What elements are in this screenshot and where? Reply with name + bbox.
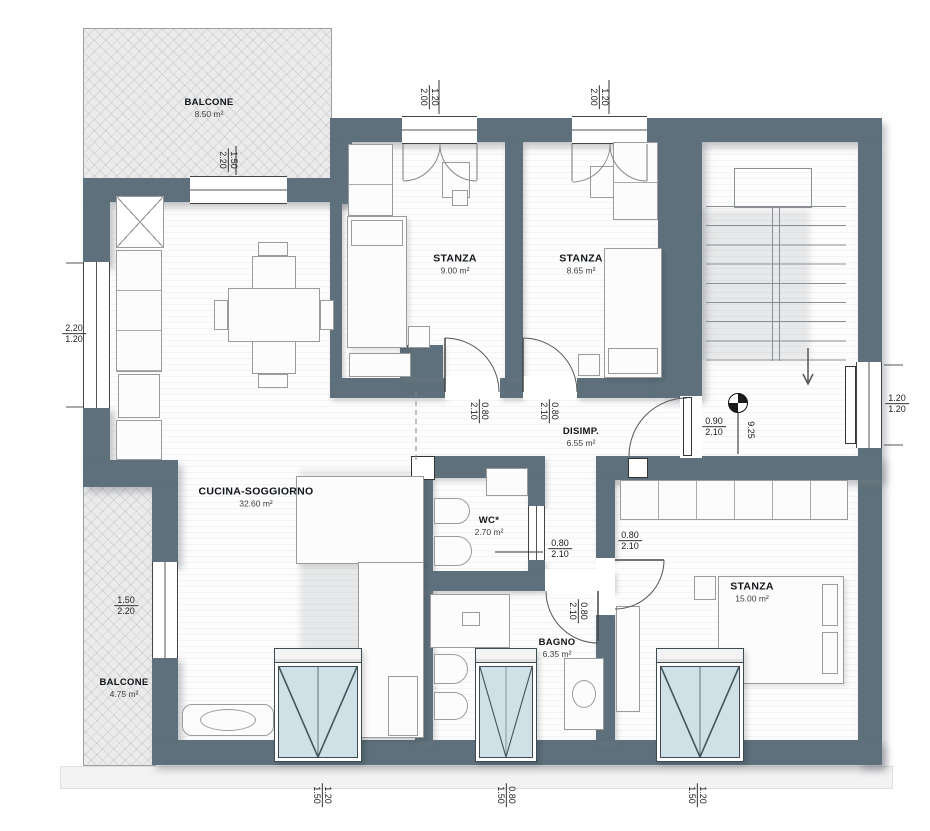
corner-post bbox=[628, 458, 648, 478]
nightstand bbox=[408, 326, 430, 348]
dimension-door-wc: 0.80 2.10 bbox=[548, 538, 572, 560]
dim-width: 1.20 bbox=[885, 393, 909, 404]
dimension-door-stanza2: 0.80 2.10 bbox=[538, 399, 560, 423]
wall-wc-right-upper bbox=[528, 478, 545, 506]
wall-wc-bagno-divider bbox=[415, 571, 545, 591]
dim-width: 0.90 bbox=[702, 416, 726, 427]
pillow bbox=[822, 584, 838, 626]
dim-height: 2.10 bbox=[702, 428, 726, 438]
chair bbox=[258, 374, 288, 388]
dimension-top-window-1: 1.20 2.00 bbox=[418, 85, 440, 109]
room-name: DISIMP. bbox=[563, 426, 599, 437]
dim-width: 1.20 bbox=[599, 85, 610, 109]
room-area: 8.65 m² bbox=[559, 266, 603, 276]
dim-height: 2.10 bbox=[548, 550, 572, 560]
glass-panel bbox=[479, 666, 533, 758]
dim-height: 1.20 bbox=[885, 405, 909, 415]
nightstand bbox=[578, 354, 600, 376]
sofa-chaise bbox=[296, 476, 424, 564]
wc-sink bbox=[486, 468, 528, 496]
dim-width: 1.20 bbox=[429, 85, 440, 109]
wall-left-upper bbox=[83, 202, 110, 264]
room-label-wc: WC* 2.70 m² bbox=[475, 515, 504, 537]
door-opening-stanza2 bbox=[523, 376, 577, 400]
wall-panel bbox=[616, 606, 640, 712]
pillow bbox=[822, 632, 838, 674]
wc-sliding-door bbox=[528, 506, 545, 560]
dim-width: 0.80 bbox=[618, 530, 642, 541]
nightstand bbox=[694, 576, 716, 600]
room-name: CUCINA-SOGGIORNO bbox=[198, 486, 313, 498]
ground-band bbox=[60, 766, 893, 789]
stair-landing-outline bbox=[734, 168, 812, 208]
vanity-basin bbox=[572, 680, 596, 708]
dim-height: 1.50 bbox=[311, 783, 321, 807]
door-opening-bagno bbox=[545, 569, 598, 593]
dimension-left-balcony-door: 1.50 2.20 bbox=[114, 595, 138, 617]
room-area: 6.35 m² bbox=[539, 649, 576, 659]
dim-width: 1.20 bbox=[697, 783, 708, 807]
room-name: STANZA bbox=[433, 253, 477, 265]
dim-height: 1.20 bbox=[62, 335, 86, 345]
wall-stanza3-left-upper bbox=[596, 476, 615, 560]
french-window-stanza3 bbox=[656, 648, 744, 762]
wall-door-post bbox=[500, 378, 523, 398]
shower-drain bbox=[462, 612, 480, 626]
dimension-door-stanza1: 0.80 2.10 bbox=[468, 399, 490, 423]
chair bbox=[258, 242, 288, 256]
wall-left-jog bbox=[83, 460, 178, 487]
dimension-top-window-2: 1.20 2.00 bbox=[588, 85, 610, 109]
chair bbox=[320, 300, 334, 330]
level-marker-icon bbox=[728, 393, 748, 413]
wardrobe bbox=[613, 142, 658, 220]
window-stanza1 bbox=[402, 116, 477, 144]
wall-right bbox=[858, 142, 882, 765]
dim-width: 1.20 bbox=[322, 783, 333, 807]
lounge-tray bbox=[200, 709, 256, 731]
door-opening-stanza1 bbox=[445, 376, 500, 400]
dim-width: 1.50 bbox=[114, 595, 138, 606]
room-area: 9.00 m² bbox=[433, 266, 477, 276]
dim-width: 0.80 bbox=[549, 399, 560, 423]
dim-height: 1.50 bbox=[495, 783, 505, 807]
dining-table bbox=[228, 288, 320, 342]
balcony-top-sliding-door bbox=[190, 176, 287, 204]
french-window-living bbox=[274, 648, 362, 762]
glass-panel bbox=[660, 666, 740, 758]
room-area: 2.70 m² bbox=[475, 527, 504, 537]
dim-width: 2.20 bbox=[62, 323, 86, 334]
kitchen-oven bbox=[118, 374, 160, 418]
pillow bbox=[351, 220, 403, 246]
wall-stanza2-bottom bbox=[577, 378, 658, 398]
room-name: BALCONE bbox=[99, 677, 148, 688]
level-text: 9.25 bbox=[746, 421, 756, 439]
wall-inner-left-upper bbox=[152, 487, 178, 564]
dimension-right-window: 1.20 1.20 bbox=[885, 393, 909, 415]
dim-height: 2.00 bbox=[588, 85, 598, 109]
room-name: WC* bbox=[475, 515, 504, 526]
room-label-stanza1: STANZA 9.00 m² bbox=[433, 253, 477, 276]
room-label-stanza2: STANZA 8.65 m² bbox=[559, 253, 603, 276]
window-stanza2 bbox=[572, 116, 647, 144]
room-label-balcone-bottom: BALCONE 4.75 m² bbox=[99, 677, 148, 699]
kitchen-counter-low bbox=[116, 420, 162, 460]
room-label-bagno: BAGNO 6.35 m² bbox=[539, 637, 576, 659]
living-cabinet bbox=[388, 676, 418, 736]
desk-chair bbox=[452, 190, 468, 206]
room-area: 15.00 m² bbox=[730, 594, 774, 604]
dimension-door-bagno: 0.80 2.10 bbox=[567, 599, 589, 623]
dim-height: 2.00 bbox=[418, 85, 428, 109]
wall-inner-left-lower bbox=[152, 656, 178, 742]
stairs-divider bbox=[772, 206, 780, 361]
balcony-bottom-area bbox=[83, 486, 156, 766]
room-name: BAGNO bbox=[539, 637, 576, 648]
dimension-left-window: 2.20 1.20 bbox=[62, 323, 86, 345]
dim-width: 0.80 bbox=[548, 538, 572, 549]
room-area: 8.50 m² bbox=[184, 109, 233, 119]
room-area: 4.75 m² bbox=[99, 689, 148, 699]
door-opening-stanza3 bbox=[596, 558, 615, 615]
bidet bbox=[434, 498, 470, 524]
dim-height: 2.20 bbox=[217, 148, 227, 172]
window-right-landing bbox=[856, 362, 882, 448]
pillow bbox=[608, 348, 658, 374]
wall-stanza-divider bbox=[505, 142, 523, 378]
dimension-bottom-window-1: 1.20 1.50 bbox=[311, 783, 333, 807]
wall-left-lower bbox=[83, 406, 110, 462]
level-value: 9.25 bbox=[746, 421, 756, 439]
shutter-box bbox=[275, 649, 361, 663]
dim-height: 2.10 bbox=[618, 542, 642, 552]
toilet bbox=[434, 536, 472, 566]
wardrobe-row bbox=[620, 480, 848, 520]
room-area: 32.60 m² bbox=[198, 499, 313, 509]
french-window-bagno bbox=[475, 648, 537, 762]
window-left-living bbox=[83, 262, 110, 408]
dimension-entry-door: 0.90 2.10 bbox=[702, 416, 726, 438]
room-label-balcone-top: BALCONE 8.50 m² bbox=[184, 97, 233, 119]
wall-stanza1-left bbox=[330, 202, 342, 378]
chair bbox=[214, 300, 228, 330]
room-name: STANZA bbox=[730, 581, 774, 593]
room-label-cucina: CUCINA-SOGGIORNO 32.60 m² bbox=[198, 486, 313, 509]
kitchen-unit-x bbox=[116, 196, 164, 248]
entry-door-leaf bbox=[683, 397, 692, 456]
dim-width: 0.80 bbox=[506, 783, 517, 807]
dim-height: 2.10 bbox=[468, 399, 478, 423]
dim-height: 1.50 bbox=[686, 783, 696, 807]
dimension-bottom-window-3: 1.20 1.50 bbox=[686, 783, 708, 807]
dim-width: 0.80 bbox=[479, 399, 490, 423]
dimension-door-stanza3: 0.80 2.10 bbox=[618, 530, 642, 552]
dim-height: 2.10 bbox=[538, 399, 548, 423]
dimension-bottom-window-2: 0.80 1.50 bbox=[495, 783, 517, 807]
dim-height: 2.20 bbox=[114, 607, 138, 617]
room-label-disimpegno: DISIMP. 6.55 m² bbox=[563, 426, 599, 448]
wall-stairwell-left bbox=[658, 138, 702, 398]
window-right-sash bbox=[845, 366, 856, 444]
dimension-top-balcony-door: 1.50 2.20 bbox=[217, 148, 239, 172]
room-area: 6.55 m² bbox=[563, 438, 599, 448]
room-name: BALCONE bbox=[184, 97, 233, 108]
wall-stanza1-bottom bbox=[330, 378, 445, 398]
room-label-stanza3: STANZA 15.00 m² bbox=[730, 581, 774, 604]
balcony-bottom-door bbox=[152, 562, 178, 658]
kitchen-counter bbox=[116, 250, 162, 372]
glass-panel bbox=[278, 666, 358, 758]
shutter-box bbox=[476, 649, 536, 663]
floor-plan: BALCONE 8.50 m² STANZA 9.00 m² STANZA 8.… bbox=[0, 0, 930, 831]
dim-width: 1.50 bbox=[228, 148, 239, 172]
toilet bbox=[434, 654, 468, 684]
shutter-box bbox=[657, 649, 743, 663]
dim-width: 0.80 bbox=[578, 599, 589, 623]
room-name: STANZA bbox=[559, 253, 603, 265]
hall-cabinet bbox=[349, 353, 411, 377]
desk bbox=[590, 166, 614, 198]
wardrobe bbox=[348, 144, 393, 216]
bidet bbox=[434, 692, 468, 720]
dim-height: 2.10 bbox=[567, 599, 577, 623]
